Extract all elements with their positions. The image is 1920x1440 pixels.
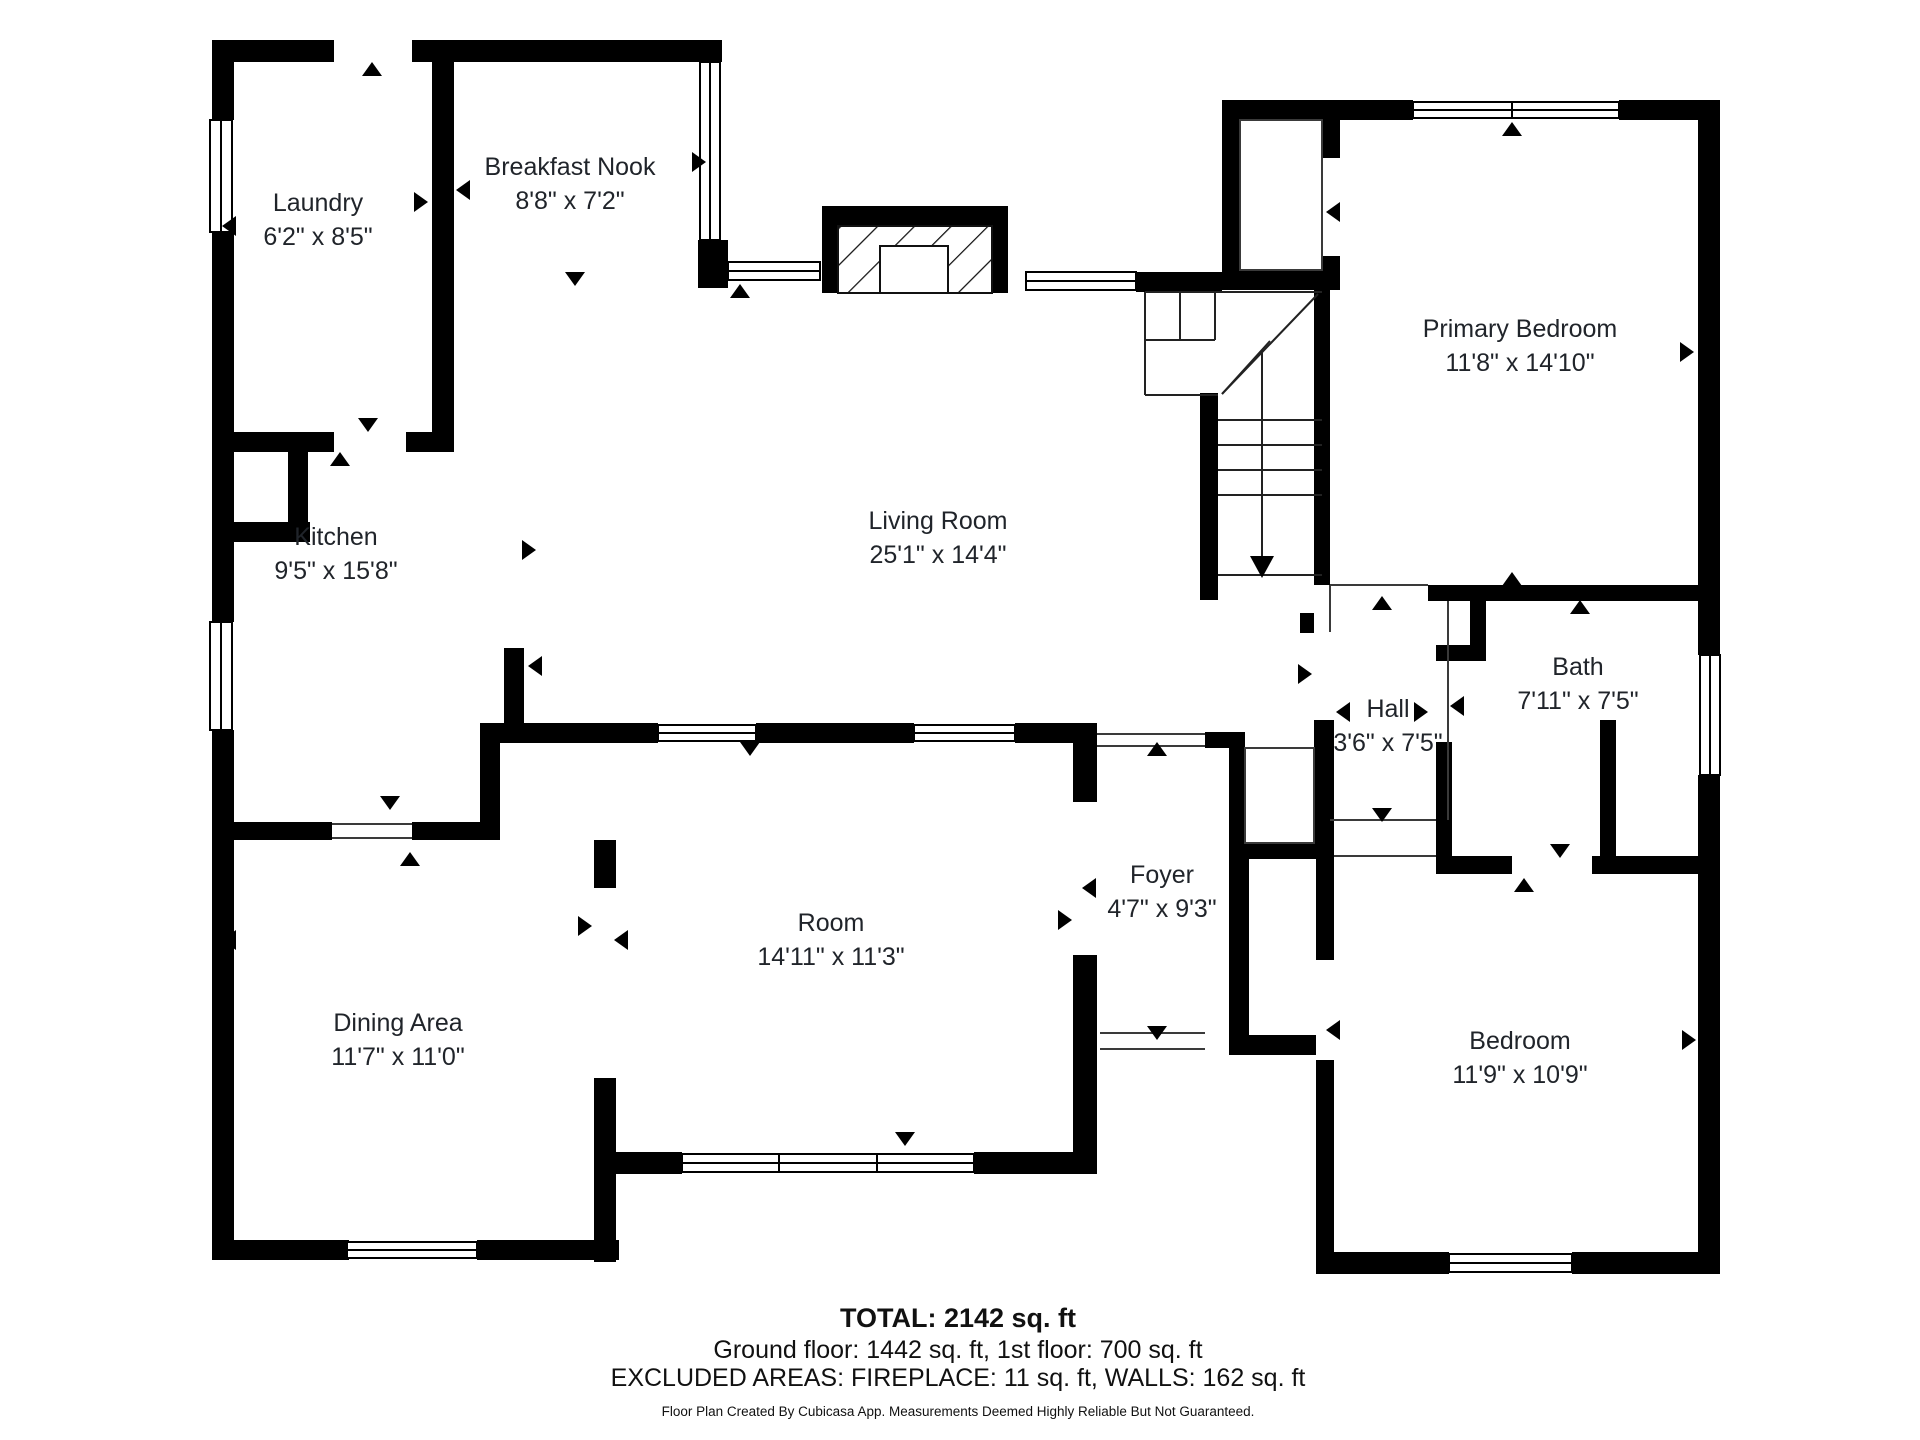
room-label-nook: Breakfast Nook 8'8" x 7'2" <box>485 150 656 218</box>
door-marker-icon <box>1372 596 1392 610</box>
room-name: Bedroom <box>1452 1024 1587 1058</box>
door-marker-icon <box>1326 1020 1340 1040</box>
room-name: Hall <box>1333 692 1442 726</box>
room-name: Foyer <box>1107 858 1216 892</box>
door-marker-icon <box>1082 878 1096 898</box>
room-label-foyer: Foyer 4'7" x 9'3" <box>1107 858 1216 926</box>
door-marker-icon <box>362 62 382 76</box>
room-dims: 25'1" x 14'4" <box>869 538 1008 572</box>
room-dims: 11'8" x 14'10" <box>1423 346 1618 380</box>
window-bath-right <box>1700 655 1720 775</box>
door-marker-icon <box>1326 202 1340 222</box>
door-marker-icon <box>522 540 536 560</box>
window-laundry-left <box>210 120 232 232</box>
window-dining-south <box>347 1242 477 1258</box>
room-dims: 7'11" x 7'5" <box>1517 684 1638 718</box>
door-marker-icon <box>400 852 420 866</box>
fireplace <box>838 226 992 293</box>
total-area-text: TOTAL: 2142 sq. ft <box>840 1303 1076 1334</box>
firebox <box>880 246 948 293</box>
room-label-bath: Bath 7'11" x 7'5" <box>1517 650 1638 718</box>
door-marker-icon <box>1450 696 1464 716</box>
door-marker-icon <box>1682 1030 1696 1050</box>
door-marker-icon <box>565 272 585 286</box>
door-marker-icon <box>1502 122 1522 136</box>
door-marker-icon <box>1058 910 1072 930</box>
window-bedroom-south <box>1449 1254 1572 1272</box>
room-dims: 11'7" x 11'0" <box>331 1040 464 1074</box>
room-label-laundry: Laundry 6'2" x 8'5" <box>263 186 372 254</box>
door-marker-icon <box>1550 844 1570 858</box>
door-marker-icon <box>358 418 378 432</box>
door-marker-icon <box>1147 742 1167 756</box>
door-marker-icon <box>528 656 542 676</box>
floor-plan-canvas: Laundry 6'2" x 8'5" Breakfast Nook 8'8" … <box>0 0 1920 1440</box>
room-name: Laundry <box>263 186 372 220</box>
door-marker-icon <box>330 452 350 466</box>
door-marker-icon <box>740 742 760 756</box>
excluded-area-text: EXCLUDED AREAS: FIREPLACE: 11 sq. ft, WA… <box>611 1364 1306 1393</box>
room-dims: 14'11" x 11'3" <box>757 940 904 974</box>
room-dims: 3'6" x 7'5" <box>1333 726 1442 760</box>
door-marker-icon <box>1570 600 1590 614</box>
door-marker-icon <box>380 796 400 810</box>
disclaimer-text: Floor Plan Created By Cubicasa App. Meas… <box>662 1404 1255 1419</box>
room-label-kitchen: Kitchen 9'5" x 15'8" <box>274 520 397 588</box>
window-kitchen-left <box>210 622 232 730</box>
room-dims: 8'8" x 7'2" <box>485 184 656 218</box>
room-name: Breakfast Nook <box>485 150 656 184</box>
room-label-room: Room 14'11" x 11'3" <box>757 906 904 974</box>
window-nook-right <box>700 62 720 240</box>
door-marker-icon <box>578 916 592 936</box>
window-room-north-2 <box>914 725 1015 741</box>
window-primary-top <box>1413 102 1619 118</box>
room-name: Dining Area <box>331 1006 464 1040</box>
door-marker-icon <box>414 192 428 212</box>
door-marker-icon <box>456 180 470 200</box>
room-name: Primary Bedroom <box>1423 312 1618 346</box>
door-marker-icon <box>730 284 750 298</box>
window-room-south <box>682 1154 974 1172</box>
room-dims: 6'2" x 8'5" <box>263 220 372 254</box>
floors-area-text: Ground floor: 1442 sq. ft, 1st floor: 70… <box>713 1336 1202 1365</box>
room-dims: 4'7" x 9'3" <box>1107 892 1216 926</box>
room-label-bedroom: Bedroom 11'9" x 10'9" <box>1452 1024 1587 1092</box>
window-nook-south <box>728 262 820 280</box>
door-marker-icon <box>614 930 628 950</box>
room-name: Bath <box>1517 650 1638 684</box>
stairs <box>1145 292 1322 578</box>
door-marker-icon <box>1680 342 1694 362</box>
room-name: Kitchen <box>274 520 397 554</box>
room-label-primary: Primary Bedroom 11'8" x 14'10" <box>1423 312 1618 380</box>
room-label-living: Living Room 25'1" x 14'4" <box>869 504 1008 572</box>
door-marker-icon <box>895 1132 915 1146</box>
room-dims: 9'5" x 15'8" <box>274 554 397 588</box>
room-name: Room <box>757 906 904 940</box>
door-marker-icon <box>1298 664 1312 684</box>
door-marker-icon <box>1514 878 1534 892</box>
window-living-north <box>1026 272 1136 290</box>
room-label-dining: Dining Area 11'7" x 11'0" <box>331 1006 464 1074</box>
room-name: Living Room <box>869 504 1008 538</box>
window-room-north-1 <box>658 725 756 741</box>
room-label-hall: Hall 3'6" x 7'5" <box>1333 692 1442 760</box>
room-dims: 11'9" x 10'9" <box>1452 1058 1587 1092</box>
door-marker-icon <box>1502 572 1522 586</box>
